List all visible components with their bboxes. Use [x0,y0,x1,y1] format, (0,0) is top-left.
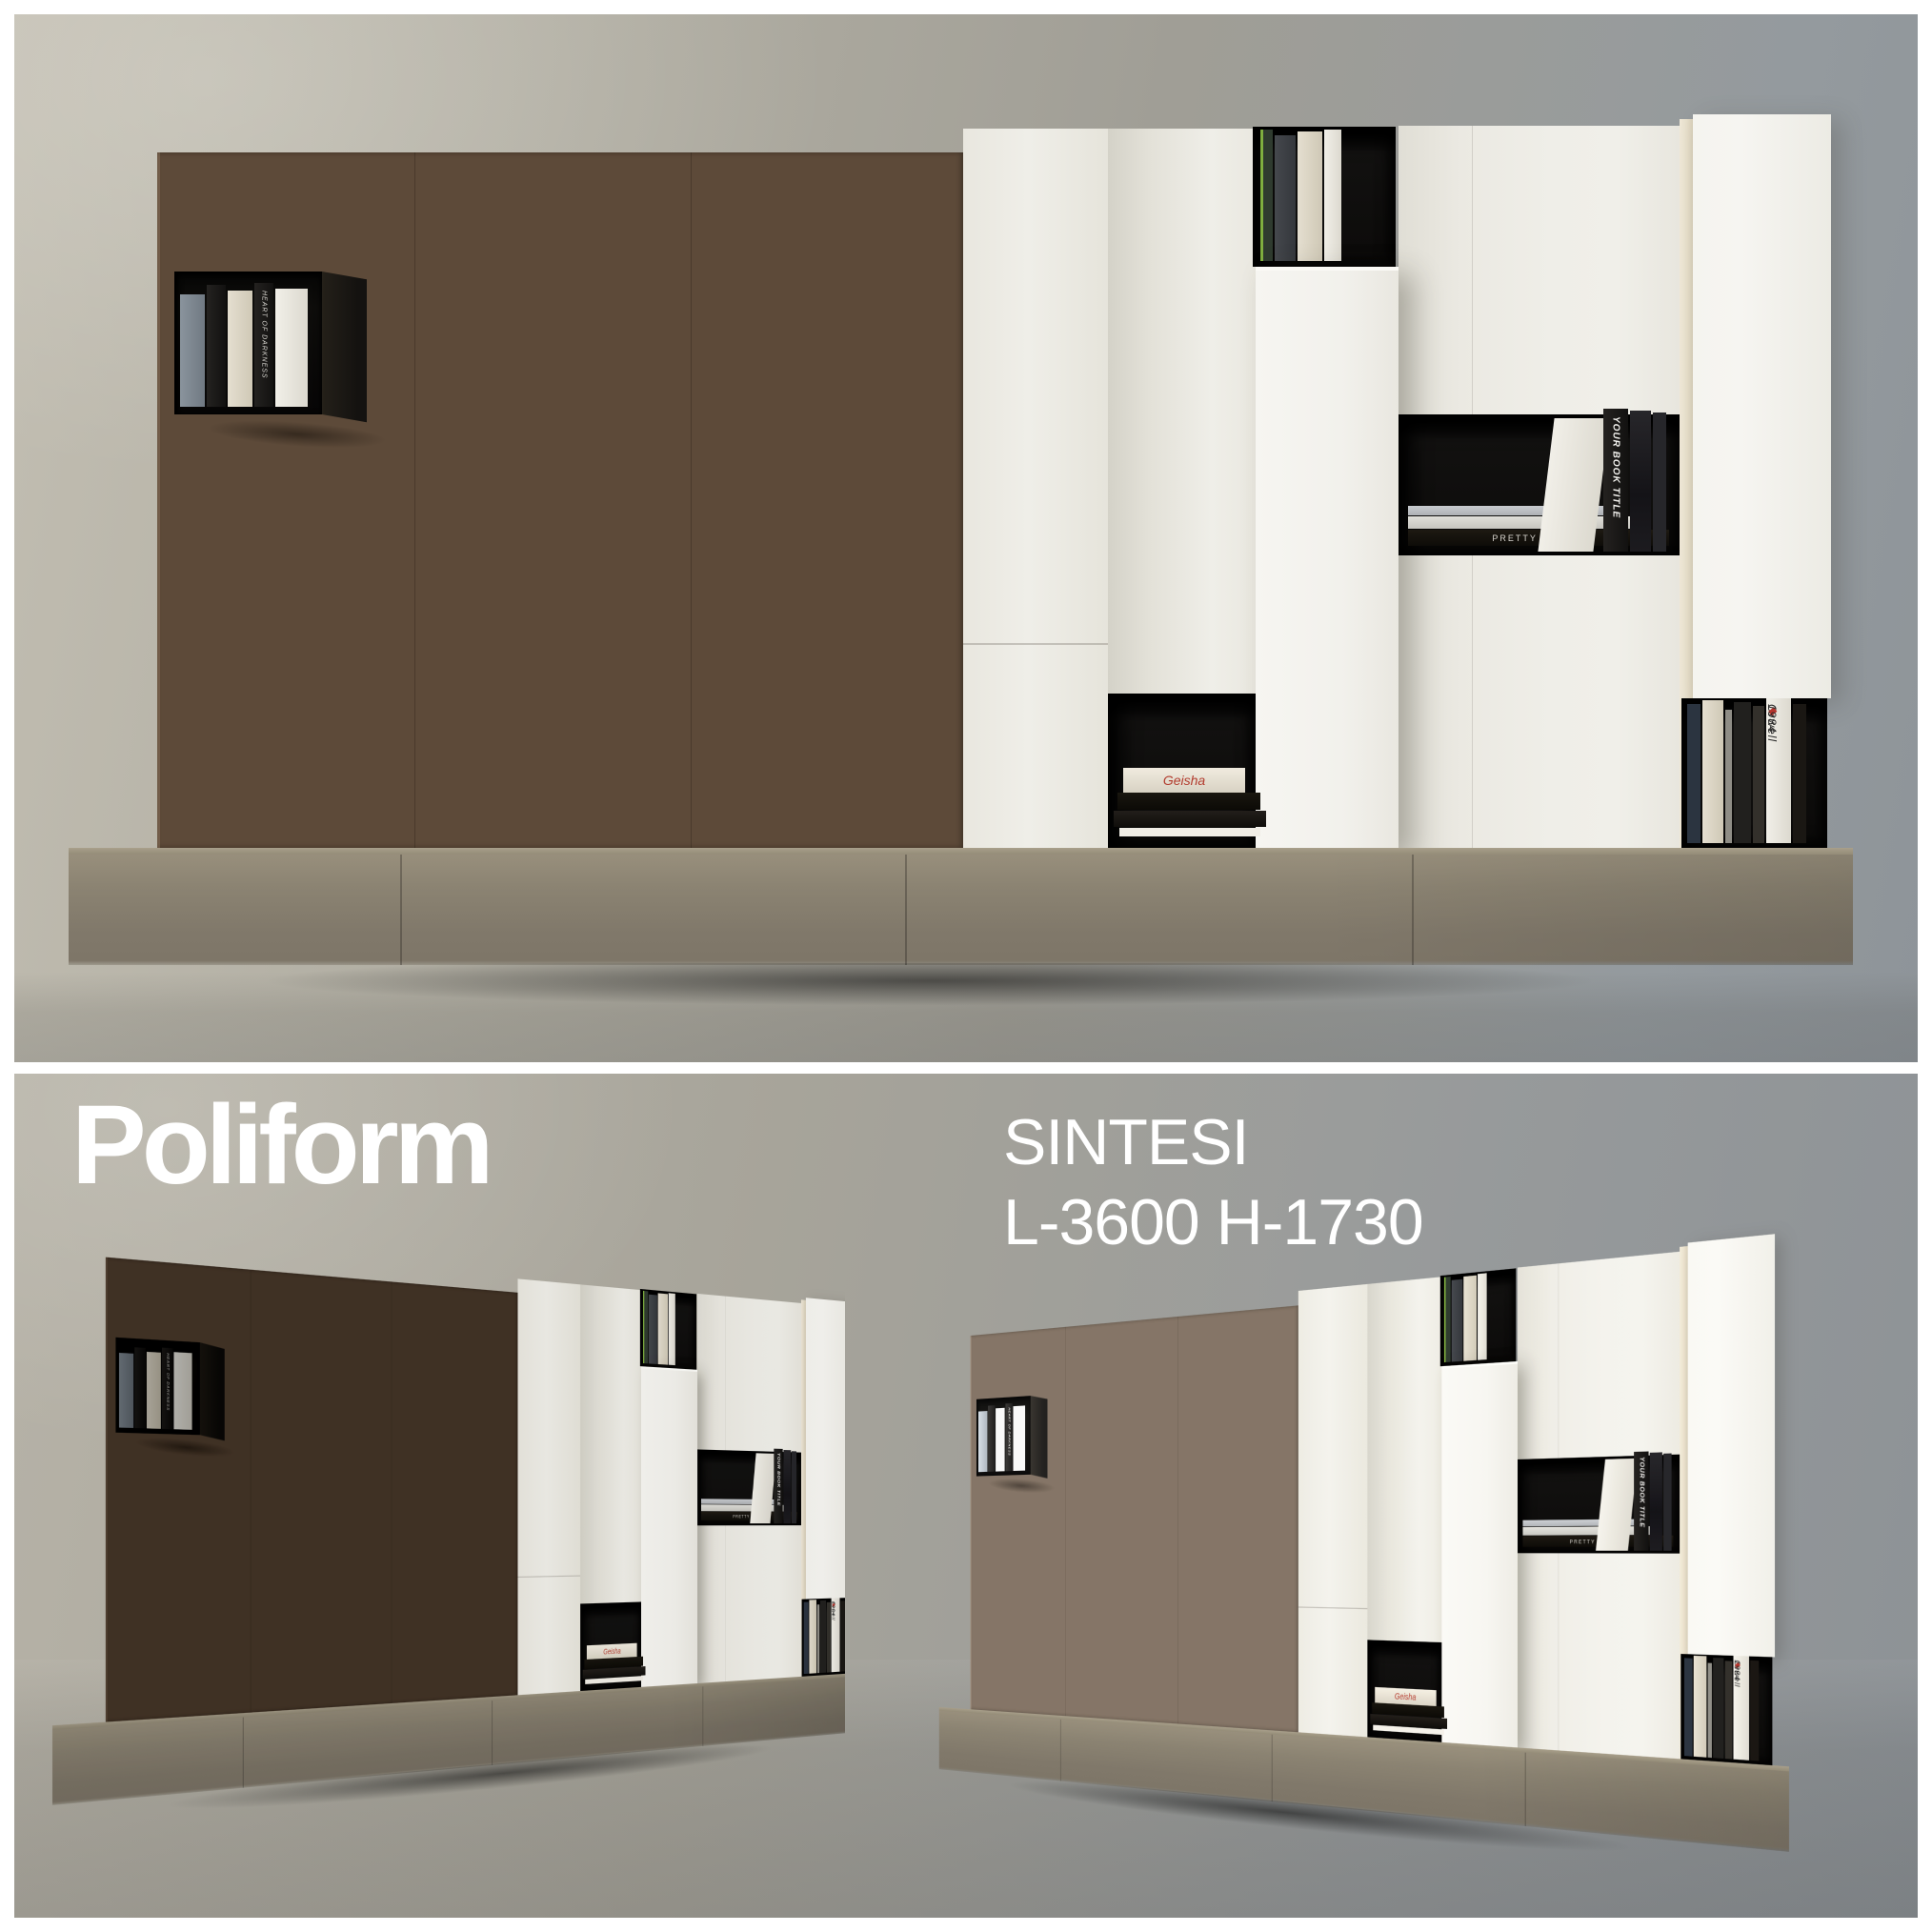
niche-middle-right: PRETTY INSANE YOUR BOOK TITLE [1518,1455,1680,1554]
book-spine [1630,411,1651,552]
book-spine [804,1602,809,1675]
book-spine: YOUR BOOK TITLE [1603,409,1628,552]
cube-books: HEART OF DARKNESS [119,1342,196,1430]
cube-shadow [189,413,429,462]
book-spine [1725,1660,1733,1759]
niche-top-center [1440,1268,1517,1366]
standing-books: Orwell ◆ 1984 [1687,698,1821,843]
book-spine-label: HEART OF DARKNESS [166,1353,170,1411]
wall-cube-shelf: HEART OF DARKNESS [174,272,379,438]
niche-top-center [640,1289,696,1370]
book-spine: HEART OF DARKNESS [254,283,273,407]
standing-books: YOUR BOOK TITLE [1600,1449,1675,1551]
book-spine: YOUR BOOK TITLE [1634,1451,1648,1550]
book-spine [1653,413,1666,552]
wall-cube-shelf: HEART OF DARKNESS [976,1395,1053,1489]
book-spine-label: YOUR BOOK TITLE [776,1453,780,1506]
cabinet-door-protruding [641,1366,697,1689]
book-spine [996,1408,1005,1472]
book-spine [1753,706,1764,843]
wood-seam [251,1270,252,1713]
cabinet-door [963,129,1108,848]
book-spine [1650,1452,1662,1550]
cabinet-door [1298,1284,1368,1737]
cube-books: HEART OF DARKNESS [180,279,315,407]
wall-unit: HEART OF DARKNESS [14,14,1918,1062]
book-spine [1013,1405,1025,1471]
book-title: Geisha [1123,773,1245,788]
book-spine [1663,1454,1671,1551]
book-title: Geisha [587,1645,637,1657]
book-spine [1713,1658,1723,1759]
niche-middle-right: PRETTY INSANE YOUR BOOK TITLE [1399,414,1680,555]
drawer-seam [1272,1735,1273,1802]
console-shadow [77,963,1855,1026]
product-sheet: HEART OF DARKNESS [0,0,1932,1932]
book-spine [207,285,226,407]
book-spine [1687,704,1701,843]
book-spine [228,291,252,407]
wood-back-panel: HEART OF DARKNESS [106,1258,518,1722]
drawer-seam [243,1718,244,1788]
book-spine [1708,1663,1712,1759]
book-spine [119,1353,133,1428]
cabinet-door-right [1688,1234,1775,1657]
book-spine [1463,1276,1477,1361]
book-spine [1275,135,1296,261]
book-spine [988,1405,995,1472]
drawer-seam [1412,855,1414,965]
book-spine [1734,702,1751,843]
cube-opening: HEART OF DARKNESS [115,1338,199,1435]
niche-bottom-left: Geisha [1367,1640,1441,1741]
cube-side-face [1031,1396,1048,1479]
standing-books: YOUR BOOK TITLE [753,1447,798,1523]
wood-back-panel: HEART OF DARKNESS [157,152,963,848]
book-spine [658,1293,668,1364]
niche-bottom-left: Geisha [580,1601,641,1691]
cabinet-door-protruding [1256,267,1399,852]
book-spine [1702,700,1723,843]
book-leaning [750,1453,775,1523]
cabinet-door-right [1693,114,1831,698]
niche-books [1260,128,1356,261]
book-spine [649,1295,657,1364]
book-spine-label: YOUR BOOK TITLE [1611,416,1621,518]
cabinet-door [517,1278,580,1695]
book-spine-orwell: Orwell ◆ 1984 [1734,1656,1749,1761]
book-spine [275,289,308,407]
book-spine [792,1451,796,1523]
cube-side-face [200,1342,225,1440]
base-console [69,848,1853,965]
book-spine: YOUR BOOK TITLE [774,1449,782,1523]
wood-seam [414,152,415,848]
product-info: SINTESI L-3600 H-1730 [1003,1102,1423,1263]
niche-bottom-right: Orwell ◆ 1984 [1680,1654,1772,1765]
front-view-panel: HEART OF DARKNESS [14,14,1918,1062]
book-spine: HEART OF DARKNESS [162,1348,172,1430]
book-spine [1793,704,1806,843]
book-spine-label: YOUR BOOK TITLE [1639,1457,1645,1527]
book-spine [1478,1273,1487,1359]
drawer-seam [1525,1753,1526,1826]
book-spine [1324,130,1341,261]
book-spine-label: HEART OF DARKNESS [261,291,268,379]
book-flat [1117,793,1260,810]
book-spine [1444,1277,1451,1362]
book-spine [147,1352,161,1429]
wall-cube-shelf: HEART OF DARKNESS [115,1338,231,1451]
niche-bottom-right: Orwell ◆ 1984 [1681,698,1827,848]
standing-books: YOUR BOOK TITLE [1546,407,1672,552]
product-name: SINTESI [1003,1102,1423,1182]
white-cabinet: PRETTY INSANE YOUR BOOK TITLE [1298,1234,1775,1765]
white-cabinet: PRETTY INSANE YOUR BOOK TITLE [963,114,1831,848]
wall-unit: HEART OF DARKNESS [19,1155,845,1875]
console-top-face [69,848,1853,855]
drawer-seam [1060,1720,1061,1781]
cube-shadow [124,1433,257,1468]
book-spine [669,1293,675,1365]
drawer-seam [400,855,402,965]
wood-back-panel: HEART OF DARKNESS [970,1305,1298,1732]
book-spine [180,294,205,407]
niche-books [643,1290,681,1366]
book-spine [1260,130,1273,261]
book-spine-orwell: Orwell ◆ 1984 [1766,698,1791,843]
book-spine [978,1411,987,1472]
cube-side-face [322,272,367,422]
book-spine [1725,710,1732,843]
book-spine [134,1347,146,1428]
book-stack: Geisha [1114,766,1253,842]
brand-logo-text: Poliform [71,1089,490,1201]
book-spine [783,1450,791,1523]
niche-top-center [1253,127,1396,267]
cube-opening: HEART OF DARKNESS [174,272,322,414]
cube-opening: HEART OF DARKNESS [976,1396,1031,1476]
wood-seam [691,152,692,848]
cabinet-door-protruding [1441,1361,1518,1750]
book-spine [809,1600,816,1674]
book-spine [1452,1279,1462,1362]
book-spine: HEART OF DARKNESS [1005,1403,1012,1471]
book-stack: Geisha [1370,1685,1439,1738]
book-spine [1684,1658,1693,1756]
book-flat: Geisha [1123,768,1245,793]
console-drawer-front [69,855,1853,965]
book-flat [1114,811,1266,827]
cube-books: HEART OF DARKNESS [978,1400,1028,1473]
door-seam [963,643,1108,645]
cube-shadow [981,1476,1071,1500]
drawer-seam [702,1686,703,1746]
book-spine-label: HEART OF DARKNESS [1008,1407,1011,1456]
wall-unit: HEART OF DARKNESS [920,1155,1832,1918]
drawer-seam [905,855,907,965]
book-title: Geisha [1375,1690,1436,1703]
book-spine [643,1291,648,1363]
book-year: 1984 [1765,704,1779,734]
standing-books: Orwell ◆ 1984 [1684,1654,1768,1761]
front-view: HEART OF DARKNESS [14,14,1918,1062]
niche-bottom-left: Geisha [1108,694,1256,848]
niche-middle-right: PRETTY INSANE YOUR BOOK TITLE [697,1449,801,1525]
book-leaning [1538,418,1609,552]
book-spine [173,1352,191,1430]
book-flat [1119,828,1260,836]
book-spine [1298,131,1322,261]
perspective-views-panel: HEART OF DARKNESS [14,1074,1918,1918]
book-stack: Geisha [583,1641,640,1687]
book-spine [1694,1656,1707,1758]
white-cabinet: PRETTY INSANE YOUR BOOK TITLE [517,1271,845,1696]
book-spine [1750,1660,1759,1761]
book-year: 1984 [1733,1660,1741,1680]
niche-books [1444,1271,1495,1362]
product-dimensions: L-3600 H-1730 [1003,1182,1423,1262]
book-leaning [1596,1459,1638,1551]
drawer-seam [492,1701,493,1765]
